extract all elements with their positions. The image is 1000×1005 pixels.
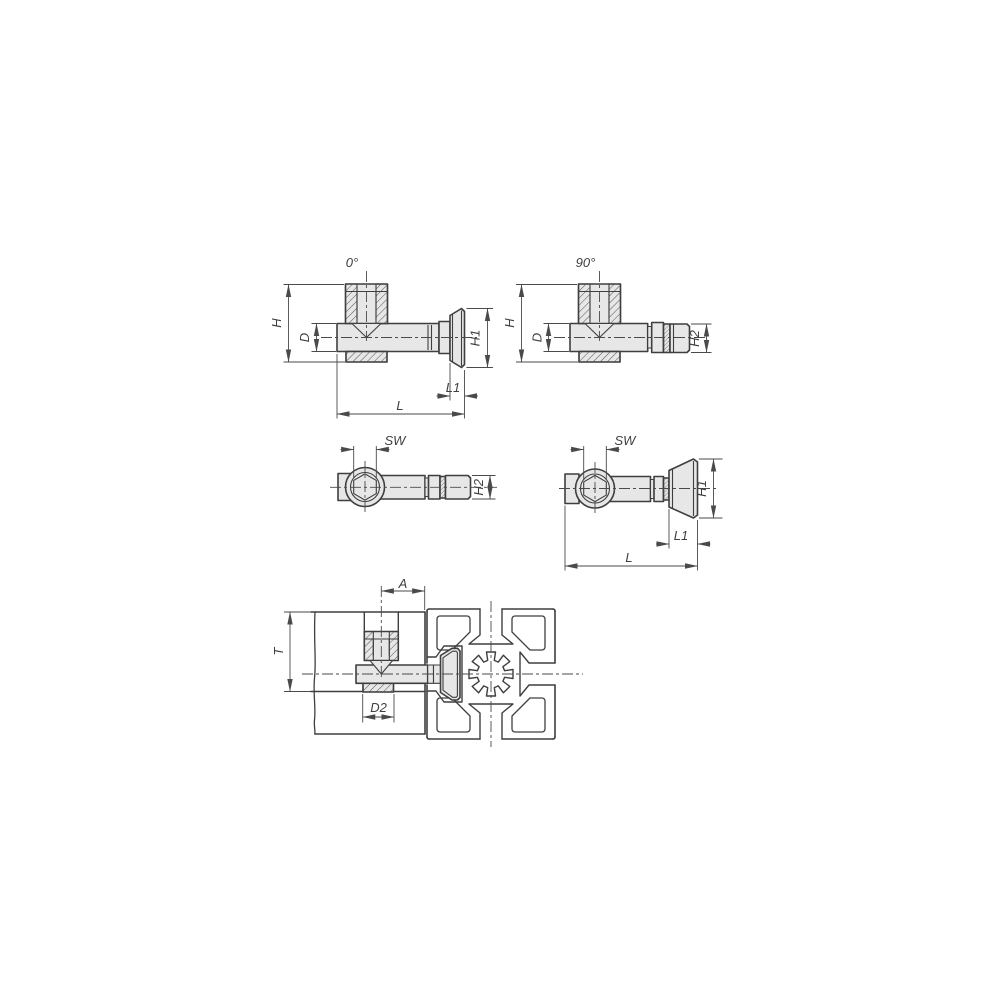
dim-label-D2: D2 [370,700,387,715]
dim-H2-90deg: H2 [687,324,712,353]
view-title-0deg: 0° [346,255,358,270]
dim-label-A: A [398,576,408,591]
break-line [314,612,315,734]
dim-label-L: L [396,398,403,413]
corner-chamber-br [512,698,545,732]
dim-H1-0deg: H1 [467,309,494,368]
technical-drawing-page: 0° H D H1 [0,0,1000,1000]
serration-band [664,478,670,500]
dim-label-H1: H1 [468,330,483,347]
dim-L1-0deg: L1 [437,363,479,419]
view-side-90deg: 90° H D H2 [502,255,712,362]
view-top-a: SW H2 [330,433,497,513]
dim-label-T: T [271,646,286,655]
dim-label-SW: SW [385,433,408,448]
dim-label-SW: SW [615,433,638,448]
corner-chamber-bl [437,698,470,732]
dim-label-L1: L1 [446,380,460,395]
corner-chamber-tr [512,616,545,650]
view-title-90deg: 90° [576,255,596,270]
dim-label-H: H [269,318,284,328]
dim-label-H: H [502,318,517,328]
dim-label-L1: L1 [674,528,688,543]
view-side-0deg: 0° H D H1 [269,255,493,419]
dim-label-H2: H2 [471,478,486,495]
dim-label-L: L [625,550,632,565]
dim-label-D: D [530,333,545,342]
dim-D2-assembly: D2 [363,694,394,723]
dim-label-H1: H1 [694,480,709,497]
dim-T-assembly: T [271,612,290,692]
dim-label-H2: H2 [687,329,702,346]
dim-label-D: D [297,333,312,342]
corner-chamber-tl [437,616,470,650]
dim-A-assembly: A [381,576,424,610]
view-assembly: A T D2 [271,576,583,747]
serration-band [664,324,671,353]
technical-drawing: 0° H D H1 [0,0,1000,1000]
fastener-assembly [356,632,460,701]
view-top-b: SW H1 L1 L [559,433,723,571]
